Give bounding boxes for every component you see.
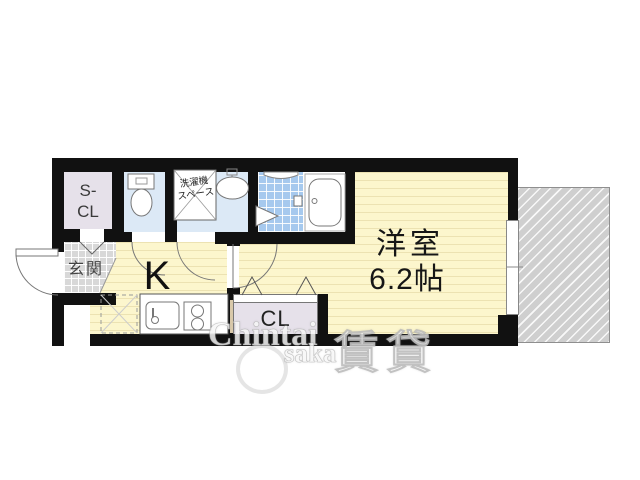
entrance-label: 玄関 — [62, 255, 110, 279]
washroom-door-arc-icon — [177, 242, 215, 280]
entrance-door-icon — [16, 249, 58, 295]
closet-label: CL — [233, 306, 318, 332]
kitchen-sink-icon — [146, 302, 179, 329]
stove-icon — [184, 302, 211, 330]
toilet-icon — [128, 174, 154, 216]
fridge-space-icon — [101, 295, 137, 333]
storage-label-line1: S- — [64, 180, 112, 201]
kitchen-counter-icon — [140, 294, 228, 334]
floor-plan: S- CL 玄関 K 洗濯機 スペース 洋室 6.2帖 CL Chintai s… — [0, 0, 640, 480]
closet-bifold-right-icon — [296, 277, 316, 295]
storage-door-mark-icon — [80, 242, 104, 254]
shower-counter-icon — [264, 172, 298, 179]
western-room-size: 6.2帖 — [352, 254, 462, 298]
storage-label-line2: CL — [64, 201, 112, 222]
bath-door-handle-icon — [294, 196, 302, 206]
bath-folding-door-icon — [256, 206, 278, 226]
washbasin-icon — [217, 169, 249, 199]
storage-label: S- CL — [64, 180, 112, 222]
fixture-layer — [0, 0, 640, 480]
bathtub-icon — [305, 174, 345, 231]
kitchen-label: K — [135, 254, 179, 299]
